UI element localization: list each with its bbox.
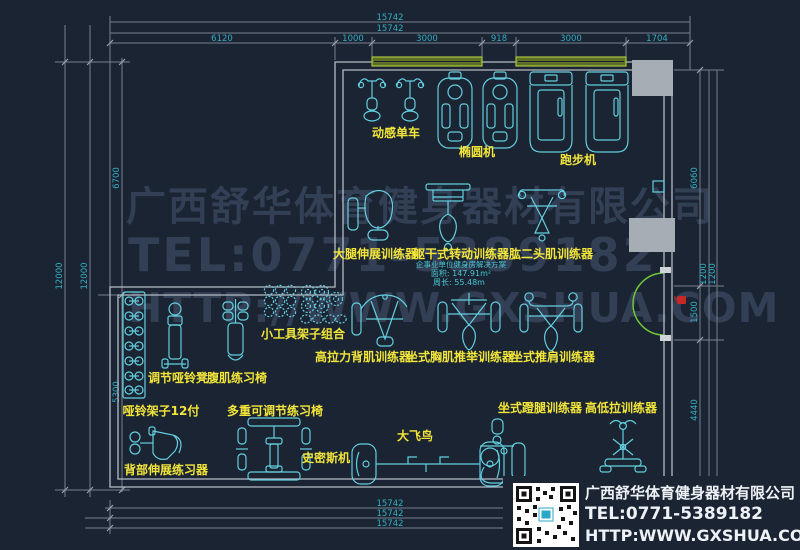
back-extension-icon	[130, 427, 181, 459]
multi-adjustable-bench-icon	[266, 426, 282, 472]
solution-perimeter: 周长: 55.48m	[433, 277, 485, 287]
dim-top-total-1: 15742	[376, 13, 403, 23]
door-hinge-top	[660, 267, 671, 273]
label-adjustable-dumbbell-bench: 调节哑铃凳	[148, 370, 209, 385]
wall-fixture-box	[653, 181, 664, 192]
solution-info: 企事业单位健身房解决方案 面积: 147.91m² 周长: 55.48m	[416, 259, 506, 287]
label-seated-leg-press: 坐式蹬腿训练器	[498, 400, 583, 415]
label-spin-bike: 动感单车	[372, 125, 420, 140]
fire-hydrant-marker	[675, 296, 686, 304]
hi-lo-pulley-icon	[600, 421, 646, 473]
label-smith-machine: 史密斯机	[302, 450, 350, 465]
label-treadmill: 跑步机	[560, 152, 596, 167]
dim-bottom-2: 15742	[376, 519, 403, 529]
label-elliptical: 椭圆机	[459, 144, 495, 159]
dim-left-1: 12000	[80, 262, 90, 289]
label-small-tools-rack: 小工具架子组合	[261, 326, 346, 341]
dim-top-seg-3: 918	[491, 34, 507, 44]
smith-machine-icon	[236, 418, 312, 480]
dim-right-4: 4440	[690, 399, 700, 421]
lat-pulldown-icon	[352, 295, 407, 346]
ab-bench-icon	[223, 299, 248, 360]
dim-right-3: 1500	[690, 301, 700, 323]
label-cable-crossover: 大飞鸟	[397, 428, 433, 443]
dim-bottom-1: 15742	[376, 509, 403, 519]
footer-company: 广西舒华体育健身器材有限公司	[585, 484, 800, 503]
treadmill-icon-1	[530, 72, 572, 152]
cad-floorplan-canvas: 广西舒华体育健身器材有限公司 TEL:0771-5389182 HTTP://W…	[0, 0, 800, 550]
label-hi-lo-pulley: 高低拉训练器	[585, 400, 658, 415]
dumbbell-rack-icon	[123, 292, 145, 398]
spin-bike-icon-1	[358, 79, 385, 121]
label-seated-shoulder-press: 坐式推肩训练器	[511, 349, 596, 364]
floorplan-drawing: 15742 15742 6120 1000 3000 918 3000 1704…	[0, 0, 800, 550]
dim-bottom-0: 15742	[376, 499, 403, 509]
footer-website: HTTP:WWW.GXSHUA.COM	[585, 526, 800, 546]
equipment-labels: 动感单车 椭圆机 跑步机 大腿伸展训练器 躯干式转动训练器 肱二头肌训练器 小工…	[123, 125, 658, 477]
pillar-mid-right	[629, 218, 675, 252]
label-biceps-curl: 肱二头肌训练器	[509, 246, 594, 261]
footer-tel: TEL:0771-5389182	[585, 504, 800, 525]
label-back-extension: 背部伸展练习器	[124, 462, 209, 477]
seated-chest-press-icon	[438, 293, 500, 350]
leg-extension-icon	[348, 190, 393, 240]
elliptical-icon-2	[483, 72, 517, 148]
label-lat-pulldown: 高拉力背肌训练器	[315, 349, 412, 364]
dim-top-seg-2: 3000	[416, 34, 438, 44]
adjustable-dumbbell-bench-icon	[162, 303, 188, 368]
dim-right-0: 6060	[690, 167, 700, 189]
dim-top-seg-4: 3000	[560, 34, 582, 44]
small-tools-rack-icon	[264, 285, 346, 323]
label-leg-extension: 大腿伸展训练器	[333, 246, 418, 261]
door-hinge-bottom	[660, 335, 671, 341]
dim-top-seg-5: 1704	[646, 34, 668, 44]
label-torso-rotation: 躯干式转动训练器	[412, 246, 510, 261]
dim-top-seg-0: 6120	[211, 34, 233, 44]
label-multi-adjustable-bench: 多重可调节练习椅	[227, 403, 323, 418]
dim-top-seg-1: 1000	[342, 34, 364, 44]
torso-rotation-icon	[426, 184, 470, 250]
biceps-curl-icon	[518, 190, 565, 241]
footer-logo-block: 广西舒华体育健身器材有限公司 TEL:0771-5389182 HTTP:WWW…	[503, 476, 800, 550]
pillar-top-right	[632, 60, 673, 96]
dim-left-0: 12000	[55, 262, 65, 289]
label-ab-bench: 腹肌练习椅	[207, 370, 267, 385]
dim-right-2: 1200	[708, 263, 718, 285]
elliptical-icon-1	[438, 72, 472, 148]
label-dumbbell-rack: 哑铃架子12付	[123, 403, 200, 418]
double-door	[633, 267, 671, 341]
spin-bike-icon-2	[396, 79, 423, 121]
solution-area: 面积: 147.91m²	[431, 268, 491, 278]
label-seated-chest-press: 坐式胸肌推举训练器	[406, 349, 515, 364]
seated-leg-press-icon	[480, 419, 525, 483]
solution-title: 企事业单位健身房解决方案	[416, 259, 506, 269]
dim-top-total-2: 15742	[376, 24, 403, 34]
dimension-ticks	[62, 40, 703, 531]
treadmill-icon-2	[586, 72, 628, 152]
dim-left-3: 5300	[112, 381, 122, 403]
qr-code	[513, 483, 579, 550]
dim-left-2: 6700	[112, 167, 122, 189]
seated-shoulder-press-icon	[520, 293, 582, 351]
